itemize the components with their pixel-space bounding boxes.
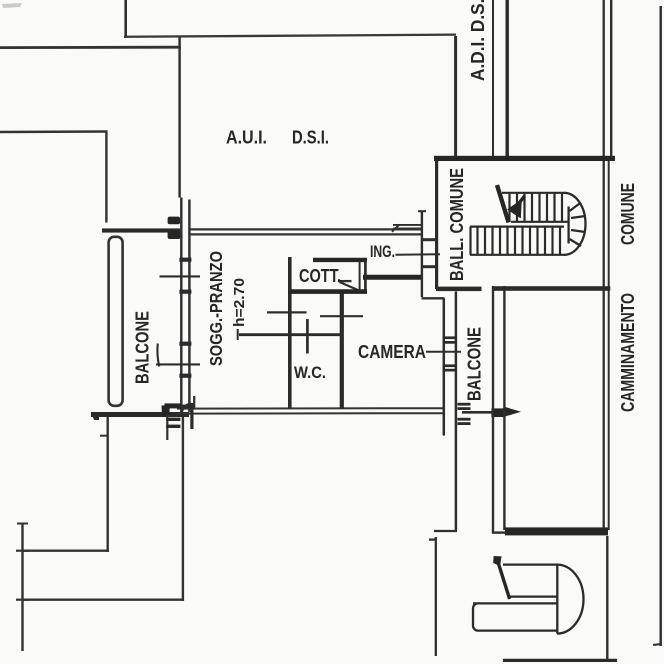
svg-text:ING.: ING.: [370, 243, 395, 261]
svg-text:COMUNE: COMUNE: [618, 183, 638, 245]
svg-text:CAMERA: CAMERA: [358, 341, 426, 362]
svg-text:D.S.I.: D.S.I.: [292, 127, 329, 148]
svg-text:BALCONE: BALCONE: [465, 327, 485, 401]
svg-text:CAMMINAMENTO: CAMMINAMENTO: [618, 293, 638, 412]
svg-text:SOGG.-PRANZO: SOGG.-PRANZO: [206, 251, 226, 366]
svg-text:h=2.70: h=2.70: [231, 278, 248, 327]
svg-text:COTT.: COTT.: [299, 266, 341, 286]
svg-text:A.U.I.: A.U.I.: [226, 127, 267, 148]
svg-text:W.C.: W.C.: [294, 363, 326, 382]
svg-text:BALL. COMUNE: BALL. COMUNE: [447, 168, 467, 281]
svg-text:A.D.I. D.S.I.: A.D.I. D.S.I.: [467, 0, 488, 81]
svg-text:BALCONE: BALCONE: [133, 311, 153, 384]
